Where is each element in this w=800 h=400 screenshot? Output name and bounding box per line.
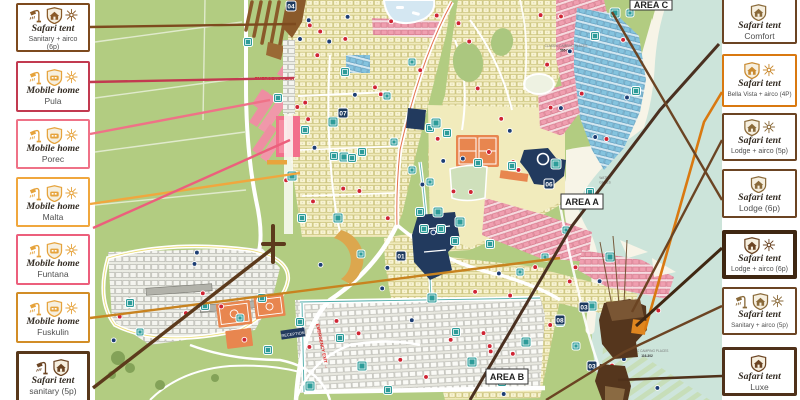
svg-text:08: 08 (556, 318, 564, 325)
svg-text:AREA B: AREA B (490, 372, 525, 382)
svg-text:07: 07 (339, 111, 347, 118)
svg-text:AREA A: AREA A (565, 197, 599, 207)
svg-text:CLASSIC CAMPING PLACES: CLASSIC CAMPING PLACES (545, 44, 588, 48)
svg-text:AREA C: AREA C (634, 0, 669, 10)
svg-text:06: 06 (545, 182, 553, 189)
svg-text:04: 04 (287, 4, 295, 11)
svg-text:01: 01 (397, 254, 405, 261)
svg-text:03: 03 (580, 305, 588, 312)
svg-text:116-302: 116-302 (641, 354, 653, 358)
